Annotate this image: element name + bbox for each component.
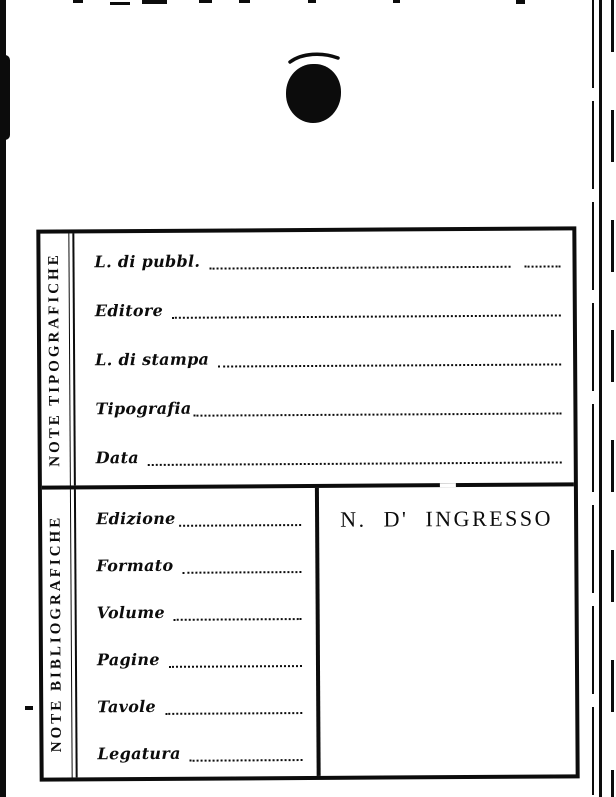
field-row-tipografia: Tipografia [95,381,561,433]
ingresso-cell: N. D' INGRESSO [319,486,576,776]
scan-mark [308,0,316,3]
scan-mark [516,0,525,4]
dotted-line [165,712,302,715]
field-label: Legatura [97,744,180,764]
divider-gap [440,483,456,487]
field-label: Tavole [97,697,156,716]
ink-blot-stroke-icon [288,50,342,66]
field-row-data: Data [96,430,562,482]
field-label: Data [96,448,139,467]
field-row-pagine: Pagine [97,635,302,683]
dotted-line-tail [525,265,561,267]
scan-mark [199,0,212,3]
dotted-line [182,571,301,574]
tipografiche-fields: L. di pubbl. Editore L. di stampa Tipogr… [74,230,574,485]
catalog-card: NOTE TIPOGRAFICHE L. di pubbl. Editore L… [36,226,579,781]
scan-mark [239,0,250,3]
ink-blot [286,64,341,123]
scan-fold-line [592,0,594,797]
scan-mark [110,2,130,5]
field-row-editore: Editore [95,283,561,335]
field-label: Pagine [97,650,160,669]
section-tipografiche: NOTE TIPOGRAFICHE L. di pubbl. Editore L… [40,230,574,485]
field-row-edizione: Edizione [96,494,301,542]
page-edge-blob [0,55,10,140]
scan-mark [393,0,400,3]
scan-fold-line [599,0,602,797]
section-title-bibliografiche: NOTE BIBLIOGRAFICHE [48,515,66,753]
dotted-line [209,265,510,269]
bibliografiche-fields: Edizione Formato Volume Pagine Tavole Le… [76,488,317,777]
dotted-line [194,412,562,416]
scan-mark [25,706,33,710]
field-label: Formato [96,556,173,575]
field-label: Tipografia [95,399,191,419]
field-row-legatura: Legatura [97,729,302,777]
field-row-l-di-pubbl: L. di pubbl. [94,234,560,286]
dotted-line [172,314,561,318]
field-label: Editore [95,301,163,320]
dotted-line [174,618,302,621]
field-label: L. di stampa [95,350,209,370]
page-right-edge [611,0,614,797]
scan-mark [142,0,167,4]
section-label-column: NOTE BIBLIOGRAFICHE [42,489,72,777]
dotted-line [179,524,301,527]
dotted-line [190,759,303,762]
field-row-volume: Volume [97,588,302,636]
field-row-l-di-stampa: L. di stampa [95,332,561,384]
dotted-line [169,665,302,668]
field-label: Volume [97,603,165,622]
section-title-tipografiche: NOTE TIPOGRAFICHE [46,252,64,467]
scan-mark [73,0,83,3]
dotted-line [148,461,562,466]
field-label: Edizione [96,509,176,528]
field-row-tavole: Tavole [97,682,302,730]
dotted-line [218,363,561,367]
field-label: L. di pubbl. [94,252,200,272]
ingresso-label: N. D' INGRESSO [340,506,553,532]
section-bibliografiche: NOTE BIBLIOGRAFICHE Edizione Formato Vol… [42,486,576,777]
field-row-formato: Formato [96,541,301,589]
scanned-catalog-card-page: { "colors": { "paper": "#ffffff", "ink":… [0,0,616,797]
section-label-column: NOTE TIPOGRAFICHE [40,233,70,485]
